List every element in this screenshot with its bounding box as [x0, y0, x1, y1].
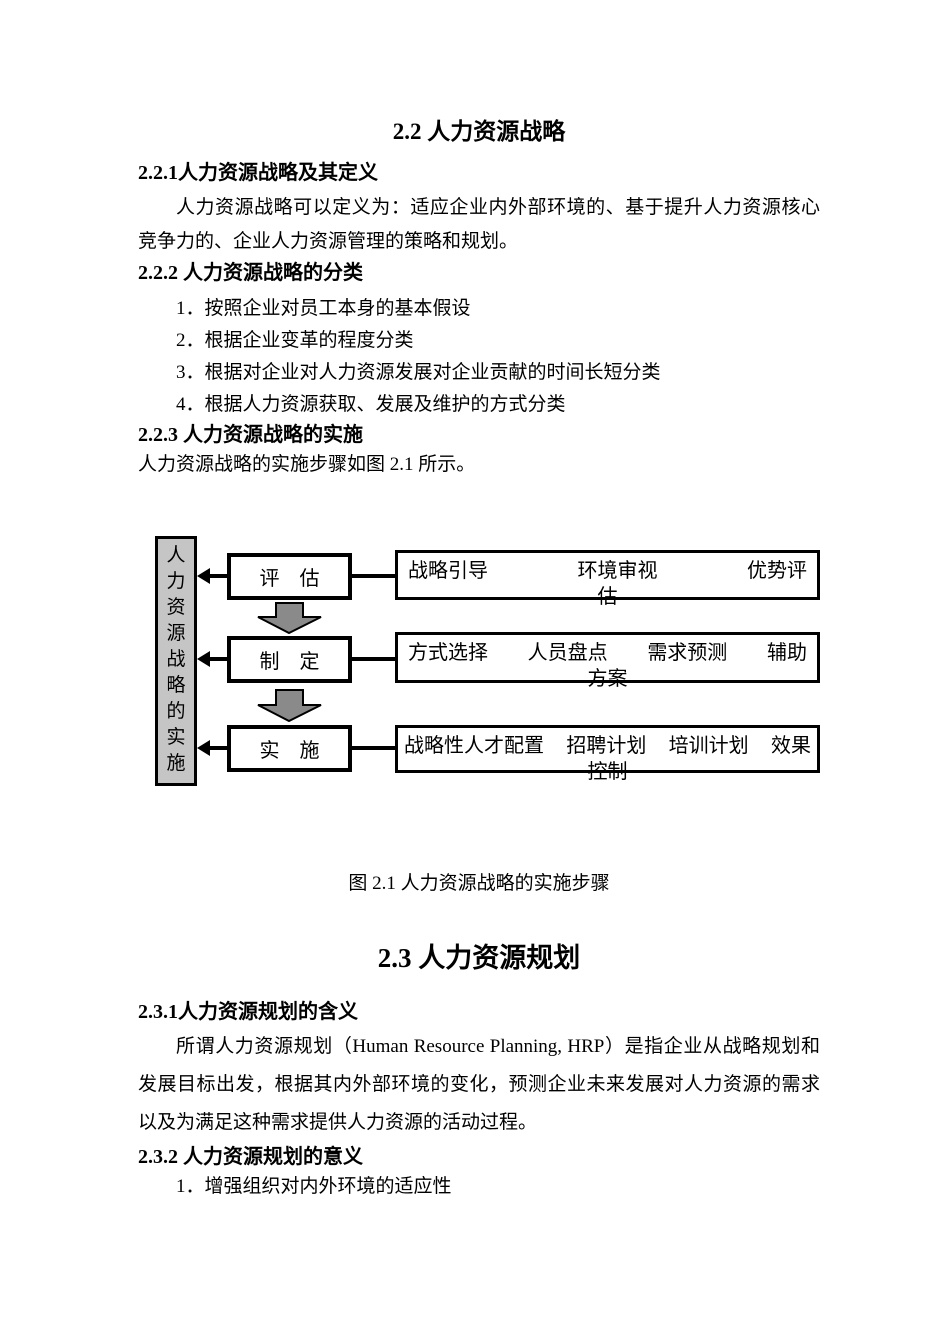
connector-line: [352, 574, 395, 578]
step-label: 实 施: [260, 734, 320, 763]
connector-line: [352, 746, 395, 750]
detail-item: 招聘计划: [566, 733, 646, 759]
step-box-evaluate: 评 估: [227, 553, 352, 600]
left-arrow-shaft: [210, 746, 227, 750]
heading-2-2-3: 2.2.3 人力资源战略的实施: [138, 423, 820, 447]
detail-box-implement: 战略性人才配置 招聘计划 培训计划 效果 控制: [395, 725, 820, 773]
heading-2-3-2: 2.3.2 人力资源规划的意义: [138, 1145, 820, 1169]
step-label: 制 定: [260, 645, 320, 674]
paragraph-2-2-1: 人力资源战略可以定义为：适应企业内外部环境的、基于提升人力资源核心竞争力的、企业…: [138, 191, 820, 259]
detail-box-evaluate: 战略引导 环境审视 优势评 估: [395, 550, 820, 600]
detail-line: 方式选择 人员盘点 需求预测 辅助: [398, 640, 817, 666]
detail-item: 培训计划: [669, 733, 749, 759]
down-block-arrow-icon: [256, 602, 323, 634]
left-arrow-icon: [197, 568, 210, 584]
detail-item: 人员盘点: [528, 640, 608, 666]
list-2-2-2: 1．按照企业对员工本身的基本假设 2．根据企业变革的程度分类 3．根据对企业对人…: [138, 293, 820, 421]
figure-caption: 图 2.1 人力资源战略的实施步骤: [138, 872, 820, 896]
diagram-side-label: 人力资源战略的实施: [158, 539, 194, 777]
heading-2-2-1: 2.2.1人力资源战略及其定义: [138, 161, 820, 185]
document-page: 2.2 人力资源战略 2.2.1人力资源战略及其定义 人力资源战略可以定义为：适…: [0, 0, 950, 1344]
detail-item: 环境审视: [578, 558, 658, 584]
list-item: 1．增强组织对内外环境的适应性: [176, 1171, 820, 1203]
detail-overflow: 估: [398, 584, 817, 610]
detail-line: 战略引导 环境审视 优势评: [398, 558, 817, 584]
list-item: 4．根据人力资源获取、发展及维护的方式分类: [176, 389, 820, 421]
heading-2-3-1: 2.3.1人力资源规划的含义: [138, 1000, 820, 1024]
detail-item: 优势评: [747, 558, 807, 584]
down-block-arrow-icon: [256, 689, 323, 722]
paragraph-2-3-1: 所谓人力资源规划（Human Resource Planning, HRP）是指…: [138, 1028, 820, 1142]
detail-item: 辅助: [767, 640, 807, 666]
diagram-side-box: 人力资源战略的实施: [155, 536, 197, 786]
left-arrow-shaft: [210, 574, 227, 578]
detail-item: 战略引导: [408, 558, 488, 584]
list-item: 3．根据对企业对人力资源发展对企业贡献的时间长短分类: [176, 357, 820, 389]
detail-line: 战略性人才配置 招聘计划 培训计划 效果: [398, 733, 817, 759]
section-2-3-title: 2.3 人力资源规划: [138, 941, 820, 975]
detail-item: 需求预测: [647, 640, 727, 666]
step-label: 评 估: [260, 562, 320, 591]
detail-overflow: 控制: [398, 759, 817, 785]
heading-2-2-2: 2.2.2 人力资源战略的分类: [138, 261, 820, 285]
connector-line: [352, 657, 395, 661]
left-arrow-icon: [197, 651, 210, 667]
list-item: 1．按照企业对员工本身的基本假设: [176, 293, 820, 325]
detail-item: 效果: [771, 733, 811, 759]
hr-strategy-flow-diagram: 人力资源战略的实施 评 估 战略引导 环境审视 优势评 估 制 定: [138, 536, 820, 788]
step-box-formulate: 制 定: [227, 636, 352, 683]
detail-box-formulate: 方式选择 人员盘点 需求预测 辅助 方案: [395, 632, 820, 683]
detail-overflow: 方案: [398, 666, 817, 692]
list-item: 2．根据企业变革的程度分类: [176, 325, 820, 357]
list-2-3-2: 1．增强组织对内外环境的适应性: [138, 1171, 820, 1203]
step-box-implement: 实 施: [227, 725, 352, 772]
detail-item: 战略性人才配置: [404, 733, 544, 759]
left-arrow-icon: [197, 740, 210, 756]
left-arrow-shaft: [210, 657, 227, 661]
detail-item: 方式选择: [408, 640, 488, 666]
section-2-2-title: 2.2 人力资源战略: [138, 118, 820, 146]
intro-line-2-2-3: 人力资源战略的实施步骤如图 2.1 所示。: [138, 452, 820, 478]
